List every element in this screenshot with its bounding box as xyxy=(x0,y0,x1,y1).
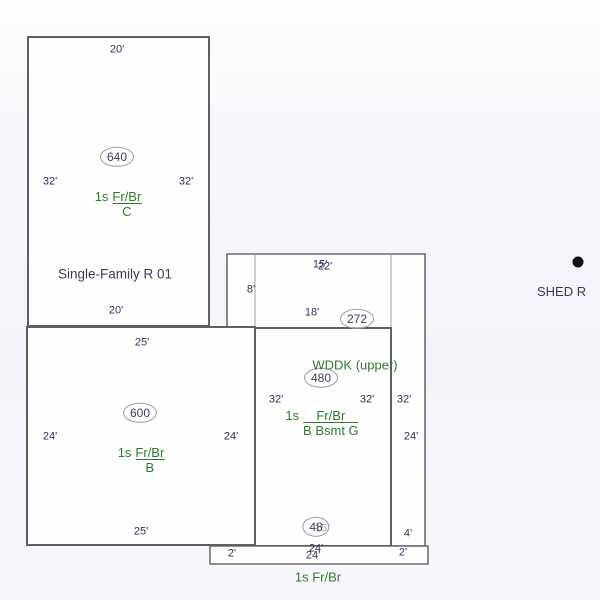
dim-600-bottom: 25' xyxy=(134,527,148,538)
dim-640-bottom: 20' xyxy=(109,306,123,317)
dim-480-right: 32' xyxy=(360,395,374,406)
code-label-600: 1sFr/BrB xyxy=(118,446,165,474)
shed-dot-icon[interactable] xyxy=(573,257,584,268)
dim-640-right: 32' xyxy=(179,177,193,188)
shed-label: SHED R xyxy=(537,284,586,299)
sketch-outlines xyxy=(0,0,600,600)
basement-code: C xyxy=(112,203,141,218)
basement-code: B xyxy=(135,459,164,474)
dim-640-top: 20' xyxy=(110,45,124,56)
building-name: Single-Family R 01 xyxy=(58,267,172,281)
wall-code: Fr/Br xyxy=(112,190,141,203)
dim-porch-right: 2' xyxy=(399,548,407,559)
dim-porch-left: 2' xyxy=(228,549,236,560)
porch-code-label: 1s Fr/Br xyxy=(295,571,341,584)
dim-porch-bottom: 24' xyxy=(306,551,320,562)
dim-600-right: 24' xyxy=(224,432,238,443)
basement-code: B Bsmt G xyxy=(303,422,359,437)
wall-code: Fr/Br xyxy=(316,409,345,422)
dim-480-top: 15' xyxy=(313,260,327,271)
dim-deck-bottom-right: 4' xyxy=(404,529,412,540)
wall-code: Fr/Br xyxy=(135,446,164,459)
dim-deck-inner-right: 24' xyxy=(404,432,418,443)
dim-deck-left: 8' xyxy=(247,285,255,296)
code-label-640: 1sFr/BrC xyxy=(95,190,142,218)
section-600-outline[interactable] xyxy=(27,327,255,545)
story-prefix: 1s xyxy=(285,409,299,422)
dim-600-left: 24' xyxy=(43,432,57,443)
dim-deck-inner-bottom: 18' xyxy=(305,308,319,319)
story-prefix: 1s xyxy=(95,190,109,203)
sketch-canvas[interactable]: 20' 640 32' 32' 1sFr/BrC Single-Family R… xyxy=(0,0,600,600)
deck-label: WDDK (upper) xyxy=(312,359,397,372)
story-prefix: 1s xyxy=(118,446,132,459)
dim-deck-outer-right: 32' xyxy=(397,395,411,406)
dim-640-left: 32' xyxy=(43,177,57,188)
dim-480-left: 32' xyxy=(269,395,283,406)
code-label-480: 1sFr/BrB Bsmt G xyxy=(285,409,358,437)
dim-600-top: 25' xyxy=(135,338,149,349)
